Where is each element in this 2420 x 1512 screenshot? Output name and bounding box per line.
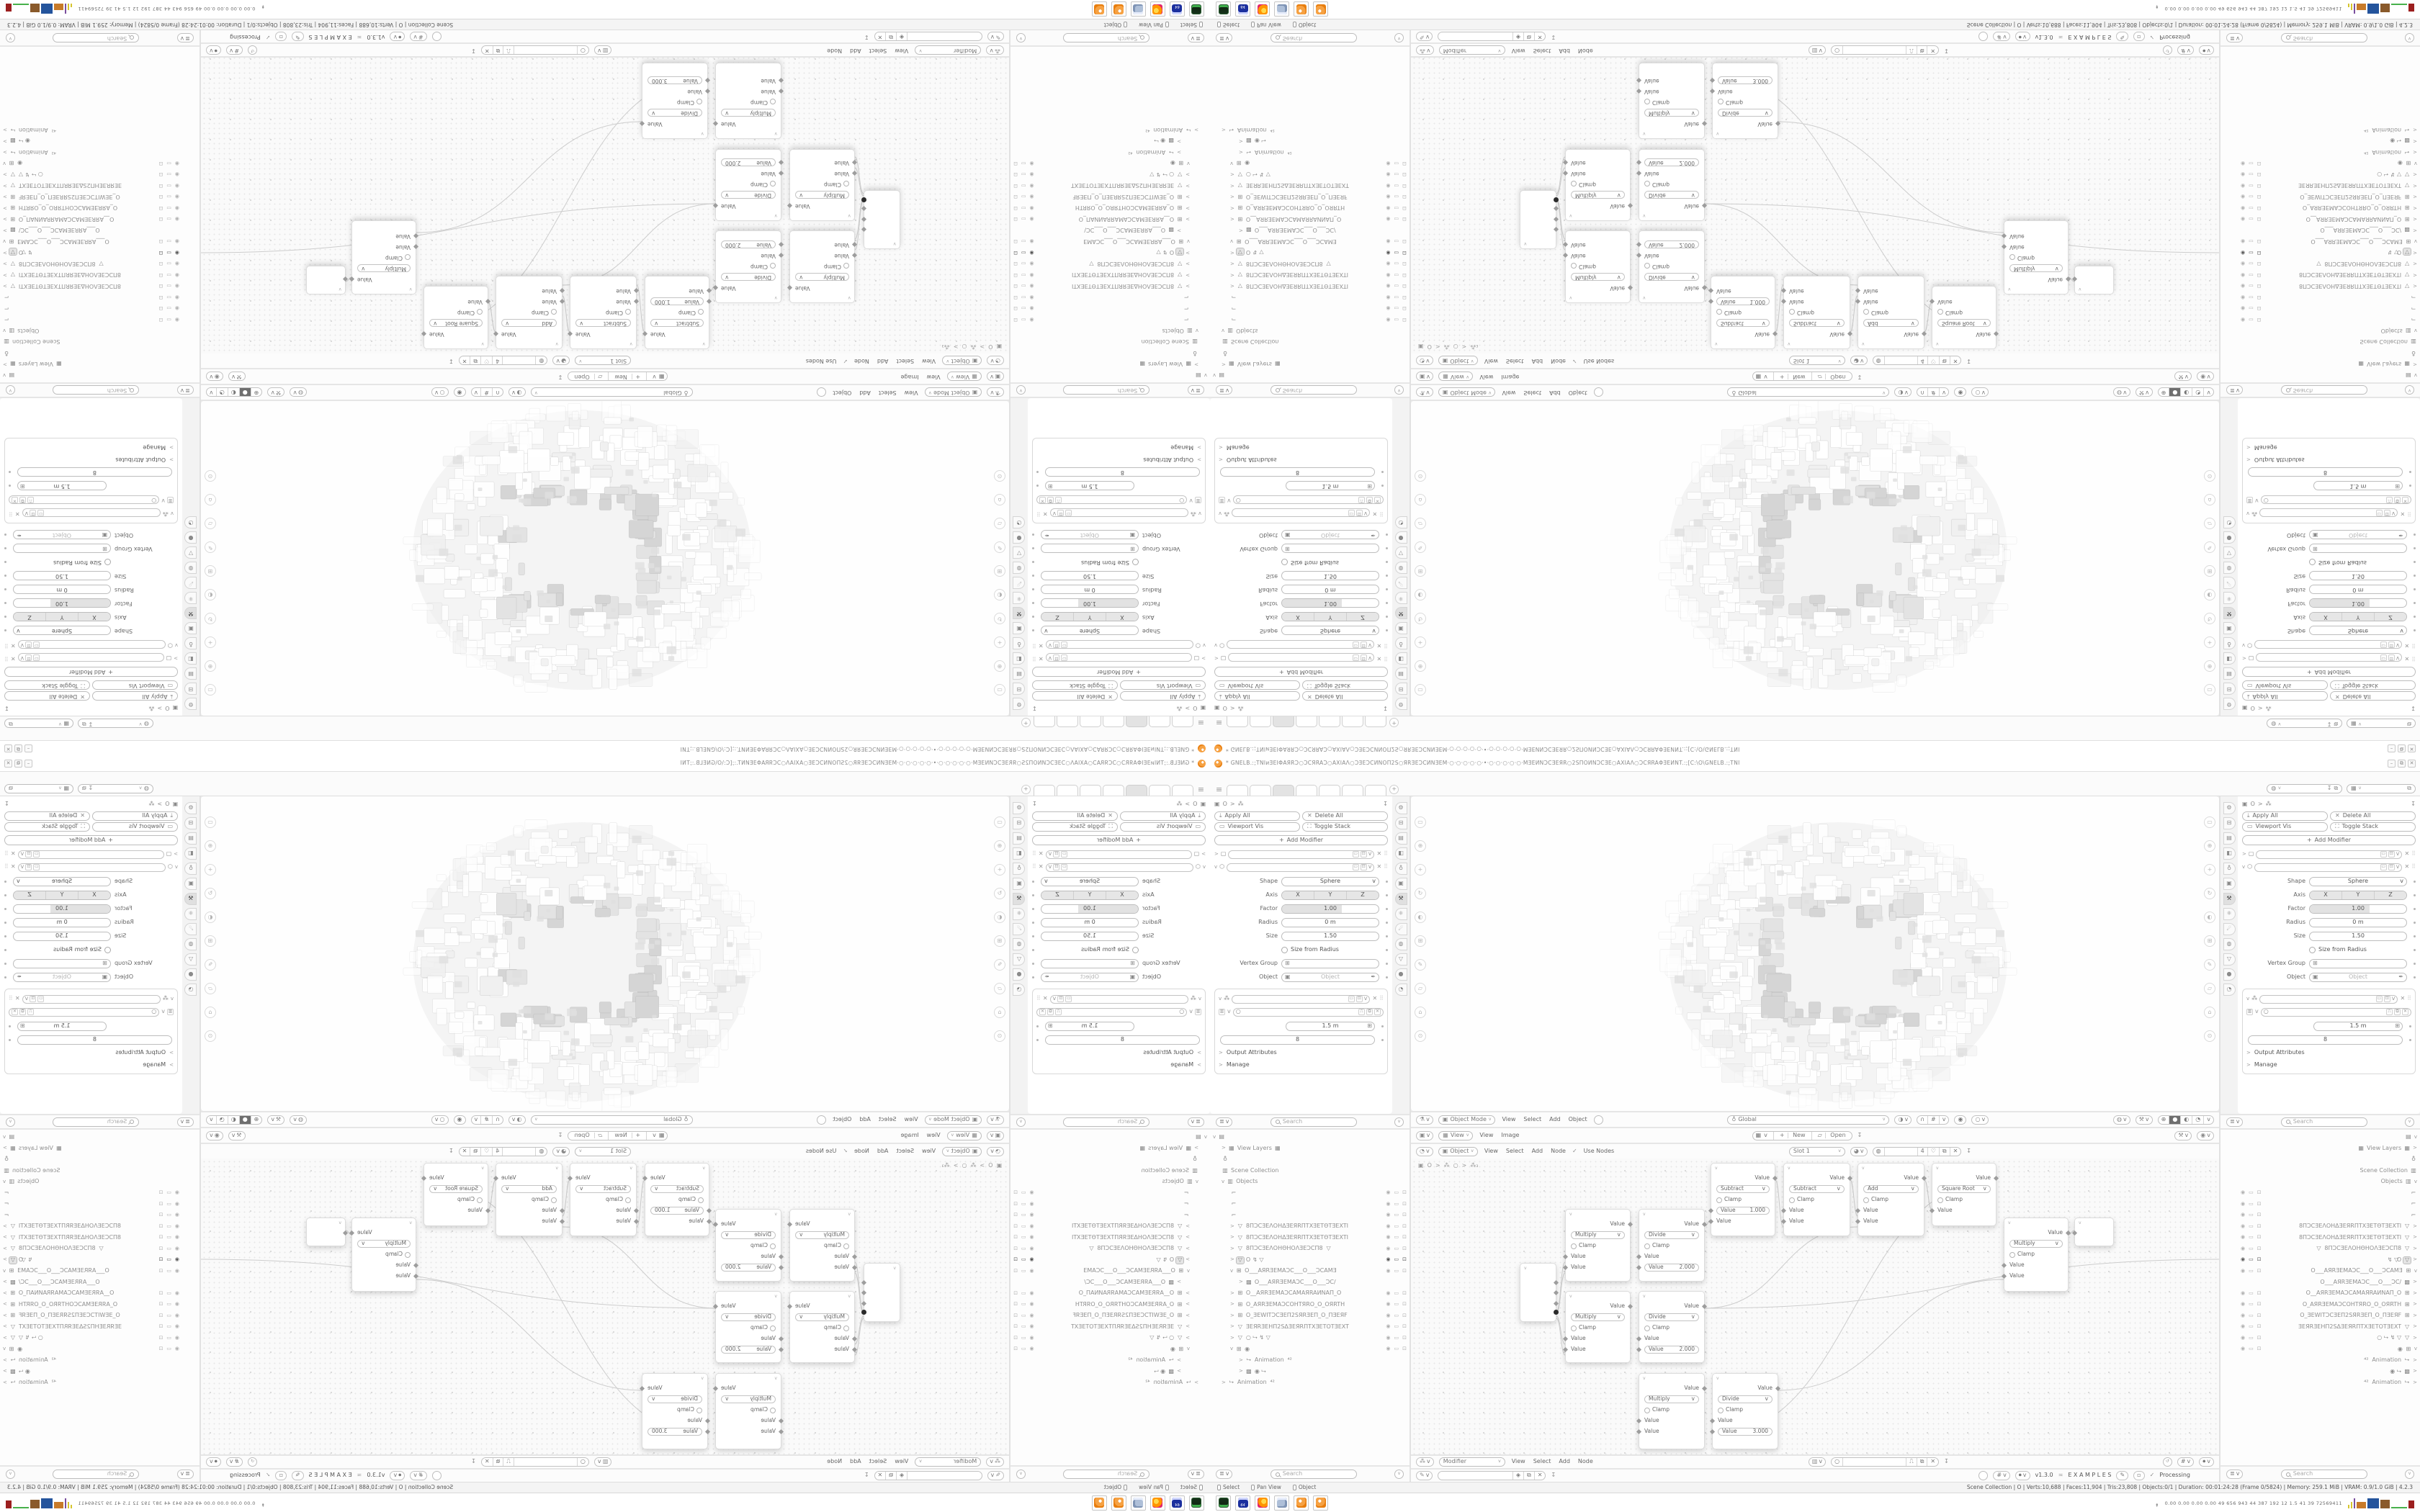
drag-handle-icon[interactable]: ⠿ — [1032, 864, 1036, 870]
operation-select[interactable]: Subtractv — [650, 1185, 704, 1193]
close-icon[interactable]: ✕ — [1372, 996, 1377, 1002]
brush-button[interactable]: ✎ — [2116, 1471, 2128, 1480]
workspace-tab-2[interactable] — [1149, 785, 1170, 796]
camera-toggle-icon[interactable]: ⊡ — [1402, 1246, 1407, 1252]
record-button[interactable]: ⏺v — [390, 1471, 405, 1480]
screen-toggle-icon[interactable]: ▭ — [1348, 996, 1355, 1002]
menu-add[interactable]: Add — [859, 1117, 871, 1123]
camera-toggle-icon[interactable]: ⊡ — [25, 642, 32, 648]
taskbar-app-terminal[interactable] — [1189, 2, 1204, 17]
operation-select[interactable]: Subtractv — [1716, 1185, 1770, 1193]
outliner-row[interactable]: v⊞◉◉▭⊡ — [1013, 1344, 1207, 1356]
shading-solid-icon[interactable]: ● — [239, 389, 251, 397]
screen-toggle-icon[interactable]: ▭ — [1021, 1269, 1026, 1274]
animate-dot[interactable] — [9, 485, 11, 487]
section-output-attributes[interactable]: >Output Attributes — [1036, 1047, 1201, 1059]
modifier-name-field[interactable]: ▭⊡v — [18, 863, 166, 872]
factor-slider[interactable]: 1.00 — [1281, 904, 1379, 914]
camera-toggle-icon[interactable]: ⊡ — [1013, 1224, 1018, 1230]
add-workspace-button[interactable]: + — [1021, 785, 1031, 794]
record-button[interactable]: ⏺v — [2015, 1471, 2030, 1480]
use-nodes-label[interactable]: Use Nodes — [1584, 1148, 1615, 1155]
screen-toggle-icon[interactable]: ▭ — [2249, 1324, 2254, 1330]
axis-option-z[interactable]: Z — [1347, 613, 1379, 621]
animate-dot[interactable] — [1032, 922, 1034, 924]
camera-toggle-icon[interactable]: ⊡ — [1402, 1212, 1407, 1218]
pivot-button[interactable]: ◑v — [508, 1115, 526, 1125]
node-header[interactable]: v — [716, 1374, 781, 1383]
vertex-group-field[interactable]: ⊞ — [1041, 544, 1139, 553]
outliner-row[interactable]: >▽8ПƆCƎEΛOHΘHOΛƎEƆCП8▽◉▭⊡ — [3, 1243, 197, 1255]
minimize-button[interactable]: – — [2388, 760, 2396, 768]
screen-toggle-icon[interactable]: ▭ — [2249, 1224, 2254, 1230]
screen-toggle-icon[interactable]: ▭ — [2249, 1291, 2254, 1297]
properties-tab-9-icon[interactable]: ◍ — [1395, 562, 1407, 574]
workspace-tab-5[interactable] — [1319, 785, 1340, 796]
screen-toggle-icon[interactable]: ▭ — [1021, 316, 1026, 322]
node-header[interactable]: v — [2004, 284, 2068, 293]
screen-toggle-icon[interactable]: ▭ — [1394, 316, 1399, 322]
chevron-icon[interactable]: v — [1198, 510, 1201, 516]
properties-tab-1-icon[interactable]: ⊟ — [185, 683, 197, 695]
outliner-row[interactable]: >▽○ ⮡ ↯ ▽◉▭⊡ — [1013, 168, 1207, 180]
shading-wireframe-icon[interactable]: ⊕ — [2159, 1116, 2170, 1124]
axis-option-y[interactable]: Y — [1073, 613, 1106, 621]
camera-toggle-icon[interactable]: ⊡ — [158, 238, 163, 243]
properties-tab-2-icon[interactable]: ▤ — [185, 832, 197, 845]
screen-toggle-icon[interactable]: ▭ — [166, 238, 171, 243]
button-toggle-stack[interactable]: ⛶Toggle Stack — [4, 680, 90, 690]
camera-toggle-icon[interactable]: ⊡ — [1402, 182, 1407, 188]
chevron-icon[interactable]: v — [1204, 372, 1207, 377]
eye-toggle-icon[interactable]: ◉ — [175, 171, 179, 176]
outliner-row[interactable]: >▽O↯ ▽◉▭⊡ — [2223, 1255, 2417, 1266]
outliner-row[interactable]: >▩O___AЯRƎEMAƆC___O___ƆC/ — [1013, 224, 1207, 235]
chevron-icon[interactable]: > — [3, 182, 7, 188]
clamp-checkbox[interactable] — [843, 1243, 849, 1249]
eye-toggle-icon[interactable]: ◉ — [1386, 305, 1390, 310]
options-button[interactable]: v — [1394, 1470, 1404, 1479]
camera-toggle-icon[interactable]: ⊡ — [1013, 1313, 1018, 1319]
button-delete-all[interactable]: ✕Delete All — [1032, 811, 1118, 821]
size-from-radius-radio[interactable] — [2309, 559, 2316, 565]
output-socket-active[interactable] — [1554, 1310, 1559, 1315]
outliner-row[interactable]: ⌐◉▭⊡ — [1213, 1188, 1407, 1200]
camera-toggle-icon[interactable]: ⊡ — [2257, 182, 2262, 188]
chevron-icon[interactable]: > — [1186, 1302, 1190, 1308]
screen-toggle-icon[interactable]: ▭ — [37, 510, 44, 516]
image-tool-b[interactable]: ◉v — [206, 372, 223, 382]
workspace-tab-3[interactable] — [1126, 785, 1147, 796]
screen-toggle-icon[interactable]: ▭ — [1394, 160, 1399, 166]
node-header[interactable]: v — [716, 1210, 781, 1219]
node-header[interactable]: v — [864, 1264, 900, 1273]
mode-select[interactable]: ▣Object Modev — [1438, 1115, 1496, 1125]
outliner-row[interactable]: >▽8ПƆCƎEΛOHΘHOΛƎEƆCП8▽◉▭⊡ — [1213, 258, 1407, 269]
close-icon[interactable]: ✕ — [1039, 851, 1044, 858]
minimize-button[interactable]: – — [2388, 744, 2396, 752]
camera-toggle-icon[interactable]: ⊡ — [158, 1202, 163, 1207]
outliner-row[interactable]: v⊞O___AЯRƎEMAƆC___O___ƆCAMƎ◉▭⊡ — [3, 1266, 197, 1277]
tool-type-button[interactable]: ✎v — [1416, 32, 1433, 41]
number-field[interactable]: 0 m — [1281, 918, 1379, 927]
button-viewport-vis[interactable]: ▭Viewport Vis — [2242, 822, 2328, 832]
options-button[interactable]: v — [1016, 386, 1026, 395]
properties-tab-1-icon[interactable]: ⊟ — [1013, 683, 1026, 695]
chevron-down-icon[interactable]: v — [25, 996, 29, 1002]
operation-select[interactable]: Multiplyv — [1571, 273, 1625, 281]
chevron-icon[interactable]: v — [1230, 1346, 1233, 1352]
chevron-icon[interactable]: > — [1194, 1146, 1198, 1151]
camera-toggle-icon[interactable]: ⊡ — [158, 305, 163, 310]
operation-select[interactable]: Dividev — [647, 109, 702, 117]
node-header[interactable]: v — [716, 293, 781, 302]
transform-orientation[interactable]: ♁Globalv — [1727, 1115, 1889, 1125]
eye-toggle-icon[interactable]: ◉ — [1386, 1269, 1390, 1274]
eye-toggle-icon[interactable]: ◉ — [1386, 1336, 1390, 1341]
modifier-name-field[interactable]: ▭⊡v — [1046, 850, 1192, 859]
unlink-icon[interactable]: ✕ — [875, 1472, 886, 1480]
drag-handle-icon[interactable]: ⠿ — [1384, 642, 1388, 648]
chevron-icon[interactable]: > — [2413, 1324, 2417, 1330]
screen-toggle-icon[interactable]: ▭ — [166, 171, 171, 176]
taskbar-app-floppy-64[interactable]: 64 — [1235, 1495, 1250, 1511]
value-field[interactable]: Value1.000 — [650, 297, 704, 305]
workspace-tab-2[interactable] — [1250, 716, 1271, 727]
workspace-tab-6[interactable] — [1342, 716, 1363, 727]
count-field[interactable]: 8 — [2248, 1035, 2403, 1045]
math-node[interactable]: vValueSubtractvClampValueValue — [1783, 276, 1850, 349]
chevron-down-icon[interactable]: v — [1368, 864, 1372, 870]
camera-toggle-icon[interactable]: ⊡ — [2257, 249, 2262, 255]
options-button[interactable]: v — [1016, 1470, 1026, 1479]
modifier-mode-select[interactable]: Modifierv — [915, 45, 981, 55]
properties-tab-6-icon[interactable]: ⚒ — [1395, 607, 1407, 619]
node-header[interactable]: v — [1932, 1164, 1996, 1173]
close-button[interactable]: ✕ — [2408, 744, 2416, 752]
axis-option-x[interactable]: X — [78, 613, 110, 621]
button-toggle-stack[interactable]: ⛶Toggle Stack — [1302, 822, 1388, 832]
copy-icon[interactable]: ⧉ — [1047, 497, 1054, 503]
node-header[interactable]: v — [1639, 129, 1704, 138]
eye-toggle-icon[interactable]: ◉ — [175, 1190, 179, 1196]
outliner-row[interactable]: v▥Objects — [1013, 1176, 1207, 1188]
screen-toggle-icon[interactable]: ▭ — [37, 996, 44, 1002]
modifier-name-field[interactable]: ▭⊡v — [1050, 995, 1188, 1004]
chevron-icon[interactable]: v — [2414, 372, 2417, 377]
axis-option-z[interactable]: Z — [14, 613, 45, 621]
nodegroup-field[interactable]: ○⎍⧉✕ — [2261, 496, 2411, 505]
animate-dot[interactable] — [1032, 963, 1034, 965]
camera-toggle-icon[interactable]: ⊡ — [1013, 305, 1018, 310]
operation-select[interactable]: Multiplyv — [721, 109, 776, 117]
outliner-row[interactable]: v⊞O___AЯRƎEMAƆC___O___ƆCAMƎ◉▭⊡ — [1213, 235, 1407, 247]
size-from-radius-radio[interactable] — [1281, 559, 1288, 565]
screen-toggle-icon[interactable]: ▭ — [1021, 1246, 1026, 1252]
screen-toggle-icon[interactable]: ▭ — [166, 1291, 171, 1297]
math-node[interactable]: vValueMultiplyvClampValueValue — [715, 63, 781, 139]
chevron-icon[interactable]: > — [1186, 1257, 1190, 1263]
add-modifier-button[interactable]: +Add Modifier — [1032, 835, 1206, 845]
value-field[interactable]: Value3.000 — [647, 1428, 702, 1436]
shading-material-icon[interactable]: ◐ — [2181, 389, 2192, 397]
pin-icon[interactable]: ↧ — [1857, 1133, 1863, 1139]
modifier-name-field[interactable]: ▭⊡v — [1228, 654, 1374, 662]
properties-tab-4-icon[interactable]: ♁ — [1395, 863, 1407, 875]
chevron-icon[interactable]: > — [3, 1257, 7, 1263]
properties-tab-3-icon[interactable]: ◧ — [1013, 652, 1026, 665]
camera-toggle-icon[interactable]: ⊡ — [158, 1246, 163, 1252]
length-field[interactable]: 1.5 m⊞ — [1045, 481, 1134, 490]
vertex-group-field[interactable]: ⊞ — [2309, 959, 2407, 968]
outliner-row[interactable]: ⌐◉▭⊡ — [3, 1188, 197, 1200]
properties-tab-4-icon[interactable]: ♁ — [2223, 863, 2236, 875]
box-button[interactable]: ▫ — [275, 32, 286, 41]
camera-toggle-icon[interactable]: ⊡ — [2257, 160, 2262, 166]
pin-icon[interactable]: ↧ — [864, 1472, 869, 1479]
copy-id-icon[interactable]: ⧉ — [1940, 357, 1950, 365]
camera-toggle-icon[interactable]: ⊡ — [1013, 249, 1018, 255]
animate-dot[interactable] — [1381, 1025, 1384, 1027]
outliner-row[interactable]: >⊞O__AЯRƎEMAƆCAMAЯRAИNAП_O◉▭⊡ — [1213, 213, 1407, 225]
geonode-menu-node[interactable]: Node — [827, 1459, 842, 1465]
shape-select[interactable]: Spherev — [1281, 877, 1379, 886]
outliner-row[interactable]: >▽8ПƆCƎEΛOHΘHOΛƎEƆCП8▽◉▭⊡ — [3, 258, 197, 269]
properties-tab-1-icon[interactable]: ⊟ — [1013, 817, 1026, 829]
chevron-icon[interactable]: > — [2413, 1358, 2417, 1364]
camera-toggle-icon[interactable]: ⊡ — [158, 316, 163, 322]
chevron-icon[interactable]: > — [2413, 1257, 2417, 1263]
axis-option-x[interactable]: X — [2310, 891, 2342, 899]
chevron-icon[interactable]: v — [1214, 642, 1217, 648]
shader-menu-view[interactable]: View — [922, 1148, 936, 1155]
chevron-icon[interactable]: > — [174, 655, 178, 661]
eye-toggle-icon[interactable]: ◉ — [2241, 1291, 2245, 1297]
screen-toggle-icon[interactable]: ▭ — [1021, 171, 1026, 176]
outliner-row[interactable]: >▽ƎEЯRƎEHП2SΔƎEЯRПTXƎETOTƎEXT◉▭⊡ — [1013, 1322, 1207, 1333]
camera-toggle-icon[interactable]: ⊡ — [2257, 1235, 2262, 1241]
outliner-row[interactable]: >▦View Layers▦ — [1213, 1143, 1407, 1155]
screen-toggle-icon[interactable]: ▭ — [166, 193, 171, 199]
close-icon[interactable]: ✕ — [2404, 851, 2409, 858]
properties-tab-2-icon[interactable]: ▤ — [185, 667, 197, 680]
pin-icon[interactable]: ↧ — [558, 1133, 563, 1139]
properties-tab-7-icon[interactable]: ⚛ — [1013, 908, 1026, 920]
animate-dot[interactable] — [2409, 1025, 2411, 1027]
mode-circle-button[interactable] — [817, 1115, 826, 1125]
close-icon[interactable]: ✕ — [11, 642, 16, 648]
chevron-icon[interactable]: > — [2413, 361, 2417, 366]
eye-toggle-icon[interactable]: ◉ — [2241, 1202, 2245, 1207]
node-header[interactable]: v — [790, 1210, 854, 1219]
math-node[interactable]: vValueDividevClampValueValue2.000 — [715, 1209, 781, 1282]
search-input[interactable]: Search — [53, 1117, 139, 1127]
chevron-icon[interactable]: > — [1186, 282, 1190, 288]
math-node[interactable]: vValueDividevClampValueValue2.000 — [1639, 149, 1705, 221]
math-node[interactable]: vValueSubtractvClampValue1.000Value — [1711, 276, 1775, 349]
button-apply-all[interactable]: ⤓Apply All — [1120, 811, 1206, 821]
properties-tab-7-icon[interactable]: ⚛ — [2223, 908, 2236, 920]
workspace-tab-5[interactable] — [1080, 716, 1101, 727]
math-node[interactable]: vValueDividevClampValueValue3.000 — [1712, 1373, 1778, 1449]
value-field[interactable]: Value1.000 — [650, 1207, 704, 1215]
math-node[interactable]: vValueSubtractvClampValueValue — [570, 1163, 637, 1236]
operation-select[interactable]: Square Rootv — [1937, 319, 1991, 327]
eye-toggle-icon[interactable]: ◉ — [2241, 1346, 2245, 1352]
camera-toggle-icon[interactable]: ⊡ — [1402, 271, 1407, 277]
eye-toggle-icon[interactable]: ◉ — [1386, 1235, 1390, 1241]
math-node-collapsed[interactable]: v — [306, 1218, 346, 1246]
add-modifier-button[interactable]: +Add Modifier — [1214, 835, 1388, 845]
camera-toggle-icon[interactable]: ⊡ — [1013, 215, 1018, 221]
copy-icon[interactable]: ⧉ — [2394, 1009, 2401, 1015]
chevron-icon[interactable]: > — [1222, 1380, 1226, 1386]
outliner-row[interactable]: >▽ƎEЯRƎEHП2SΔƎEЯRПTXƎETOTƎEXT◉▭⊡ — [2223, 179, 2417, 191]
copy-icon[interactable]: ⧉ — [1524, 32, 1535, 40]
camera-toggle-icon[interactable]: ⊡ — [1356, 510, 1363, 516]
outliner-row[interactable]: >⊞O_ƎEWITƆCƎEП2SЯRƎEП_O_ПƎEЯF◉▭⊡ — [3, 191, 197, 202]
outliner-row[interactable]: >▽○ ⮡ ↯ ▽◉▭⊡ — [3, 1333, 197, 1344]
eye-toggle-icon[interactable]: ◉ — [2241, 1246, 2245, 1252]
chevron-icon[interactable]: v — [1198, 996, 1201, 1002]
shape-select[interactable]: Spherev — [1041, 877, 1139, 886]
chevron-icon[interactable]: > — [2413, 249, 2417, 255]
options-button[interactable]: v — [2405, 386, 2414, 395]
outliner-row[interactable]: >⮡Animation⁴² — [1013, 1355, 1207, 1367]
pin-icon[interactable]: ↧ — [449, 358, 454, 364]
outliner-row[interactable]: ⌐◉▭⊡ — [2223, 291, 2417, 302]
geonode-menu-node[interactable]: Node — [1578, 1459, 1593, 1465]
outliner-tree[interactable]: v▤>▦View Layers▦♁▥Scene Collectionv▥Obje… — [2220, 47, 2420, 382]
section-manage[interactable]: >Manage — [9, 441, 174, 453]
brush-button[interactable]: ✎ — [2116, 32, 2128, 41]
outliner-row[interactable]: v⊞O___AЯRƎEMAƆC___O___ƆCAMƎ◉▭⊡ — [2223, 235, 2417, 247]
close-icon[interactable]: ✕ — [15, 510, 20, 516]
number-field[interactable]: 0 m — [1041, 585, 1139, 594]
chevron-icon[interactable]: > — [1186, 249, 1190, 255]
clamp-checkbox[interactable] — [770, 1243, 776, 1249]
image-editor-type-button[interactable]: ▣v — [1416, 1131, 1433, 1140]
outliner-row[interactable]: >⊞O_ƎEWITƆCƎEП2SЯRƎEП_O_ПƎEЯF◉▭⊡ — [3, 1310, 197, 1322]
node-header[interactable]: v — [307, 1219, 345, 1228]
screen-toggle-icon[interactable]: ▭ — [1061, 642, 1067, 648]
outliner-row[interactable]: ⌐◉▭⊡ — [1213, 313, 1407, 325]
chevron-down-icon[interactable]: v — [25, 510, 29, 516]
eye-toggle-icon[interactable]: ◉ — [2241, 1224, 2245, 1230]
operation-select[interactable]: Multiplyv — [357, 1240, 411, 1248]
outliner-row[interactable]: >▦View Layers▦ — [1213, 358, 1407, 369]
search-input[interactable]: Search — [1270, 1470, 1357, 1479]
outliner-row[interactable]: ♁ — [3, 1154, 197, 1166]
eye-toggle-icon[interactable]: ◉ — [2241, 204, 2245, 210]
menu-view[interactable]: View — [905, 1117, 918, 1123]
camera-toggle-icon[interactable]: ⊡ — [2388, 864, 2395, 870]
chevron-icon[interactable]: v — [1203, 642, 1206, 648]
workspace-tab-2[interactable] — [1250, 785, 1271, 796]
screen-toggle-icon[interactable]: ▭ — [2249, 1336, 2254, 1341]
operation-select[interactable]: Addv — [1863, 319, 1919, 327]
screen-toggle-icon[interactable]: ▭ — [2249, 260, 2254, 266]
screen-toggle-icon[interactable]: ▭ — [166, 260, 171, 266]
number-field[interactable]: 1.50 — [1041, 932, 1139, 941]
copy-icon[interactable]: ⧉ — [1524, 1472, 1535, 1480]
add-modifier-button[interactable]: +Add Modifier — [1032, 667, 1206, 677]
chevron-icon[interactable]: > — [2413, 1224, 2417, 1230]
eye-toggle-icon[interactable]: ◉ — [2241, 294, 2245, 300]
math-node[interactable]: vValueSubtractvClampValueValue — [570, 276, 637, 349]
outliner-row[interactable]: >⮡Animation⁴² — [1013, 1377, 1207, 1389]
section-output-attributes[interactable]: >Output Attributes — [9, 1047, 174, 1059]
operation-select[interactable]: Subtractv — [575, 1185, 631, 1193]
geonode-menu-add[interactable]: Add — [850, 1459, 861, 1465]
nodegroup-field[interactable]: ○⎍⧉✕ — [2261, 1008, 2411, 1017]
eye-toggle-icon[interactable]: ◉ — [1030, 1269, 1034, 1274]
new-image-button[interactable]: + New — [1774, 1132, 1812, 1140]
axis-option-y[interactable]: Y — [2342, 891, 2375, 899]
chevron-icon[interactable]: > — [1230, 1336, 1234, 1341]
chevron-icon[interactable]: v — [3, 238, 6, 243]
size-from-radius-radio[interactable] — [1132, 559, 1139, 565]
chevron-icon[interactable]: v — [1204, 1135, 1207, 1140]
overlay-button[interactable]: #v — [1993, 32, 2009, 41]
node-editor-canvas[interactable]: ▣O>⁂○>⁂₃ vvValueMultiplyvClampValueValue… — [201, 1158, 1009, 1454]
viewlayer-selector[interactable]: ▦v⧉ — [2347, 784, 2416, 793]
outliner-row[interactable]: >▽8ПƆCƎEΛOHΔƎEЯRПTXƎETΘTƎEXTI◉▭⊡ — [1013, 1221, 1207, 1233]
chevron-icon[interactable]: > — [3, 193, 7, 199]
chevron-icon[interactable]: > — [1230, 215, 1234, 221]
outliner-row[interactable]: >▽ƎEЯRƎEHП2SΔƎEЯRПTXƎETOTƎEXT◉▭⊡ — [3, 1322, 197, 1333]
screen-toggle-icon[interactable]: ▭ — [2249, 1202, 2254, 1207]
asset-name-field[interactable] — [1438, 1472, 1512, 1480]
screen-toggle-icon[interactable]: ▭ — [2249, 294, 2254, 300]
geonode-menu-view[interactable]: View — [895, 47, 908, 53]
clamp-checkbox[interactable] — [551, 1197, 557, 1203]
node-header[interactable]: v — [790, 211, 854, 220]
math-node[interactable]: vValueDividevClampValueValue2.000 — [715, 149, 781, 221]
graph-icon[interactable]: ⎍ — [27, 1009, 34, 1015]
scene-selector[interactable]: ◍v↧⧉ — [78, 784, 153, 793]
button-delete-all[interactable]: ✕Delete All — [1302, 811, 1388, 821]
screen-toggle-icon[interactable]: ▭ — [1021, 249, 1026, 255]
pin-icon[interactable]: ↧ — [1857, 374, 1863, 380]
operation-select[interactable]: Dividev — [1644, 191, 1699, 199]
camera-toggle-icon[interactable]: ⊡ — [158, 182, 163, 188]
outliner-row[interactable]: >⮡Animation⁴² — [1213, 1355, 1407, 1367]
camera-toggle-icon[interactable]: ⊡ — [2257, 305, 2262, 310]
menu-view[interactable]: View — [1502, 390, 1515, 396]
image-tool-a[interactable]: ⚒v — [2174, 1131, 2192, 1140]
camera-toggle-icon[interactable]: ⊡ — [158, 1302, 163, 1308]
animate-dot[interactable] — [1032, 908, 1034, 910]
properties-tab-1-icon[interactable]: ⊟ — [1395, 817, 1407, 829]
animate-dot[interactable] — [1386, 561, 1388, 563]
animate-dot[interactable] — [4, 949, 6, 951]
camera-toggle-icon[interactable]: ⊡ — [1057, 510, 1064, 516]
chevron-icon[interactable]: > — [2413, 271, 2417, 277]
search-input[interactable]: Search — [1063, 1117, 1149, 1127]
node-header[interactable]: v — [2004, 1219, 2068, 1228]
count-field[interactable]: 8 — [2248, 467, 2403, 477]
operation-select[interactable]: Dividev — [1644, 1313, 1699, 1321]
outliner-row[interactable]: >▽8ПƆCƎEΛOHΔƎEЯRПTXƎETΘTƎEXTI◉▭⊡ — [1013, 1233, 1207, 1244]
camera-toggle-icon[interactable]: ⊡ — [1402, 1235, 1407, 1241]
animate-dot[interactable] — [1386, 602, 1388, 604]
outliner-row[interactable]: >▩◉ ⮡ — [1013, 135, 1207, 146]
fake-user-icon[interactable]: ♡ — [1928, 357, 1940, 365]
eye-toggle-icon[interactable]: ◉ — [175, 1257, 179, 1263]
length-field[interactable]: 1.5 m⊞ — [1286, 1022, 1375, 1031]
vertex-group-field[interactable]: ⊞ — [1041, 959, 1139, 968]
